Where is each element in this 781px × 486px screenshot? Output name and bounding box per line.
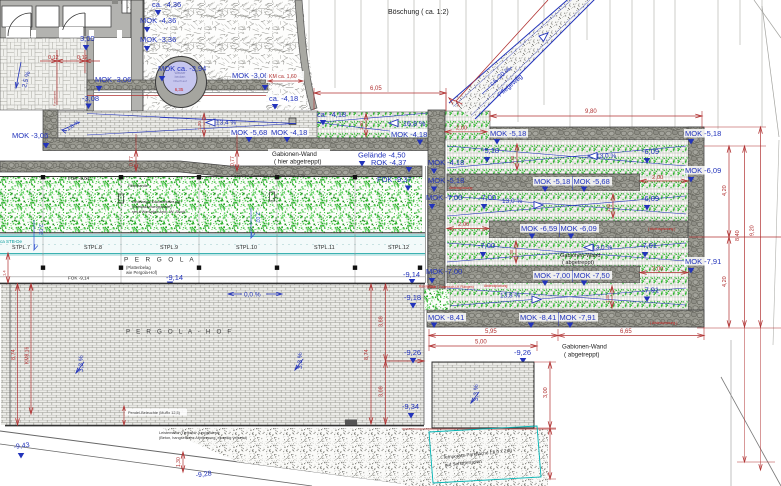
svg-text:STPL.10: STPL.10 bbox=[236, 245, 257, 251]
svg-text:1,4: 1,4 bbox=[2, 270, 7, 276]
svg-text:9,20: 9,20 bbox=[750, 225, 756, 236]
svg-text:Pendel-Beleuchte (MuRx 12,5): Pendel-Beleuchte (MuRx 12,5) bbox=[128, 411, 181, 415]
svg-text:MOK -3,36: MOK -3,36 bbox=[140, 35, 176, 44]
svg-text:2,00: 2,00 bbox=[456, 126, 467, 132]
svg-text:MOK -5,18: MOK -5,18 bbox=[534, 177, 570, 186]
svg-text:ca. -4,36: ca. -4,36 bbox=[152, 0, 181, 9]
svg-text:Gabionen-Wand: Gabionen-Wand bbox=[560, 253, 601, 259]
svg-text:-9,14: -9,14 bbox=[166, 273, 183, 282]
svg-text:8,40: 8,40 bbox=[735, 230, 741, 241]
svg-text:0,0 %: 0,0 % bbox=[244, 292, 261, 299]
svg-text:Böschung ( ca. 1:2): Böschung ( ca. 1:2) bbox=[388, 9, 449, 16]
svg-text:MOK -4,18: MOK -4,18 bbox=[391, 130, 427, 139]
svg-text:Leistenstein (Tiefbord; Jura/g: Leistenstein (Tiefbord; Jura/gekiest) bbox=[159, 431, 220, 435]
svg-text:Oberfl.auf: Oberfl.auf bbox=[173, 79, 187, 83]
svg-text:-6,09: -6,09 bbox=[642, 147, 659, 156]
svg-text:STPL.11: STPL.11 bbox=[314, 245, 335, 251]
svg-text:Abdeckplanung: Abdeckplanung bbox=[449, 186, 472, 190]
svg-text:FOK -9,37: FOK -9,37 bbox=[377, 175, 412, 184]
svg-text:MOK -6,09: MOK -6,09 bbox=[561, 224, 597, 233]
svg-text:Kieszeilen-Dachbegr. ( ) Brei: Kieszeilen-Dachbegr. ( ) Breite mind. 3,… bbox=[231, 173, 306, 178]
svg-text:6,35: 6,35 bbox=[175, 87, 184, 92]
svg-text:MOK -5,18: MOK -5,18 bbox=[490, 129, 526, 138]
svg-text:STPL.9: STPL.9 bbox=[160, 245, 178, 251]
svg-text:-6,09: -6,09 bbox=[642, 194, 659, 203]
svg-text:13,0 %: 13,0 % bbox=[596, 153, 616, 160]
svg-text:8,74: 8,74 bbox=[11, 349, 17, 360]
svg-text:2,00: 2,00 bbox=[458, 222, 469, 228]
svg-text:3,88: 3,88 bbox=[379, 316, 385, 327]
svg-text:P E R G O L A - H O F: P E R G O L A - H O F bbox=[126, 329, 233, 336]
svg-text:MOK -3,06: MOK -3,06 bbox=[232, 71, 268, 80]
svg-text:P E R G O L A: P E R G O L A bbox=[124, 257, 196, 264]
svg-text:MOK -7,00: MOK -7,00 bbox=[534, 271, 570, 280]
svg-text:2,00: 2,00 bbox=[652, 267, 663, 273]
svg-text:-9,34: -9,34 bbox=[402, 402, 419, 411]
svg-text:ca. -4,18: ca. -4,18 bbox=[269, 94, 298, 103]
svg-text:-7,91: -7,91 bbox=[642, 286, 659, 295]
svg-text:1,30: 1,30 bbox=[509, 249, 514, 258]
svg-text:MOK -8,41: MOK -8,41 bbox=[428, 313, 464, 322]
svg-text:MOK -5,18: MOK -5,18 bbox=[428, 176, 464, 185]
svg-text:MOK -6,09: MOK -6,09 bbox=[685, 166, 721, 175]
svg-text:2,02: 2,02 bbox=[37, 224, 43, 235]
svg-text:MOK -7,50: MOK -7,50 bbox=[574, 271, 610, 280]
svg-text:5,95: 5,95 bbox=[485, 329, 497, 335]
svg-text:0,77: 0,77 bbox=[129, 156, 135, 166]
svg-text:STPL.7: STPL.7 bbox=[12, 245, 30, 251]
svg-text:MOK -7,00: MOK -7,00 bbox=[426, 193, 462, 202]
svg-text:MOK -3,06: MOK -3,06 bbox=[95, 75, 131, 84]
svg-text:1,30: 1,30 bbox=[605, 294, 610, 303]
svg-text:-9,26: -9,26 bbox=[404, 348, 421, 357]
svg-text:(Beton, hangseitliche Abmessun: (Beton, hangseitliche Abmessung, einseit… bbox=[159, 436, 248, 440]
svg-text:13,0 %: 13,0 % bbox=[592, 245, 612, 252]
svg-text:wie Pergola-Hof): wie Pergola-Hof) bbox=[126, 270, 158, 275]
svg-text:( abgetreppt): ( abgetreppt) bbox=[562, 260, 594, 266]
svg-text:6,05: 6,05 bbox=[370, 86, 382, 92]
svg-text:MOK -4,18: MOK -4,18 bbox=[271, 128, 307, 137]
svg-text:MOK -4,18: MOK -4,18 bbox=[428, 158, 464, 167]
svg-text:-5,18: -5,18 bbox=[482, 146, 499, 155]
svg-text:6,65: 6,65 bbox=[620, 329, 632, 335]
svg-text:KM ca. 1,60: KM ca. 1,60 bbox=[269, 74, 297, 80]
svg-text:MOK -7,91: MOK -7,91 bbox=[560, 313, 596, 322]
svg-text:-7,00: -7,00 bbox=[479, 193, 496, 202]
svg-text:-7,00: -7,00 bbox=[478, 241, 495, 250]
svg-text:1,30: 1,30 bbox=[176, 457, 182, 467]
svg-text:( Abdeckplanung ): ( Abdeckplanung ) bbox=[650, 321, 677, 325]
svg-text:setul Werkplan Arch. W. Stock: setul Werkplan Arch. W. Stock bbox=[132, 209, 186, 214]
svg-text:4,20: 4,20 bbox=[722, 276, 728, 287]
svg-text:-3,08: -3,08 bbox=[82, 94, 99, 103]
svg-text:KM8,16: KM8,16 bbox=[25, 347, 31, 364]
svg-text:MOK -5,68: MOK -5,68 bbox=[574, 177, 610, 186]
svg-text:13,0 %: 13,0 % bbox=[502, 198, 522, 205]
svg-text:Filterbande: Filterbande bbox=[128, 183, 149, 188]
svg-text:ROK -4,37: ROK -4,37 bbox=[371, 158, 406, 167]
svg-text:3,00: 3,00 bbox=[543, 387, 549, 398]
svg-text:Fundament: Fundament bbox=[53, 91, 57, 106]
svg-text:MOK -3,06: MOK -3,06 bbox=[12, 131, 48, 140]
svg-text:MOK -6,59: MOK -6,59 bbox=[521, 224, 557, 233]
svg-text:MOK -5,18: MOK -5,18 bbox=[685, 129, 721, 138]
svg-text:( Abdeckplanung ): ( Abdeckplanung ) bbox=[648, 227, 675, 231]
svg-text:Rand (Ra.): Rand (Ra.) bbox=[419, 285, 435, 289]
svg-text:MOK -8,41: MOK -8,41 bbox=[520, 313, 556, 322]
svg-text:1,30: 1,30 bbox=[359, 121, 364, 130]
svg-text:STPL.8: STPL.8 bbox=[84, 245, 102, 251]
svg-text:-9,14: -9,14 bbox=[403, 270, 420, 279]
svg-text:5,00: 5,00 bbox=[475, 340, 487, 346]
svg-text:13,8 %: 13,8 % bbox=[500, 293, 520, 300]
svg-text:Gabionen-Wand: Gabionen-Wand bbox=[272, 151, 317, 158]
svg-text:ca STB-De: ca STB-De bbox=[0, 239, 23, 244]
svg-text:8,74: 8,74 bbox=[364, 349, 370, 360]
svg-text:( hier abgetreppt): ( hier abgetreppt) bbox=[274, 159, 321, 166]
svg-text:4,20: 4,20 bbox=[722, 185, 728, 196]
svg-text:FOK -9,14: FOK -9,14 bbox=[68, 276, 90, 281]
svg-text:MOK -7,00: MOK -7,00 bbox=[426, 267, 462, 276]
svg-text:-7,91: -7,91 bbox=[640, 241, 657, 250]
svg-text:16,8 %: 16,8 % bbox=[403, 119, 426, 128]
svg-text:ca. -4,18: ca. -4,18 bbox=[317, 110, 346, 119]
svg-text:STPL.12: STPL.12 bbox=[388, 245, 409, 251]
svg-text:MOK -5,68: MOK -5,68 bbox=[231, 128, 267, 137]
svg-text:3,00: 3,00 bbox=[80, 34, 95, 43]
svg-text:3,08: 3,08 bbox=[379, 386, 385, 397]
svg-text:-9,26: -9,26 bbox=[514, 348, 531, 357]
svg-text:MOK ca. -3,94: MOK ca. -3,94 bbox=[158, 64, 206, 73]
svg-text:MOK -4,36: MOK -4,36 bbox=[140, 16, 176, 25]
svg-text:1,30: 1,30 bbox=[510, 155, 515, 164]
svg-text:2,00: 2,00 bbox=[652, 175, 663, 181]
svg-text:Gabionen-Wand: Gabionen-Wand bbox=[562, 344, 607, 351]
svg-text:-9,18: -9,18 bbox=[404, 293, 421, 302]
svg-text:9,80: 9,80 bbox=[585, 109, 597, 115]
svg-text:FOK -9,04: FOK -9,04 bbox=[68, 176, 90, 181]
svg-text:2,02: 2,02 bbox=[254, 212, 260, 223]
svg-text:0,77: 0,77 bbox=[230, 156, 236, 166]
svg-text:1,30: 1,30 bbox=[197, 121, 202, 130]
svg-text:Abdeckplanung: Abdeckplanung bbox=[484, 284, 507, 288]
svg-text:1,30: 1,30 bbox=[606, 203, 611, 212]
svg-text:MOK -7,91: MOK -7,91 bbox=[685, 257, 721, 266]
svg-text:( abgetreppt): ( abgetreppt) bbox=[564, 352, 599, 359]
